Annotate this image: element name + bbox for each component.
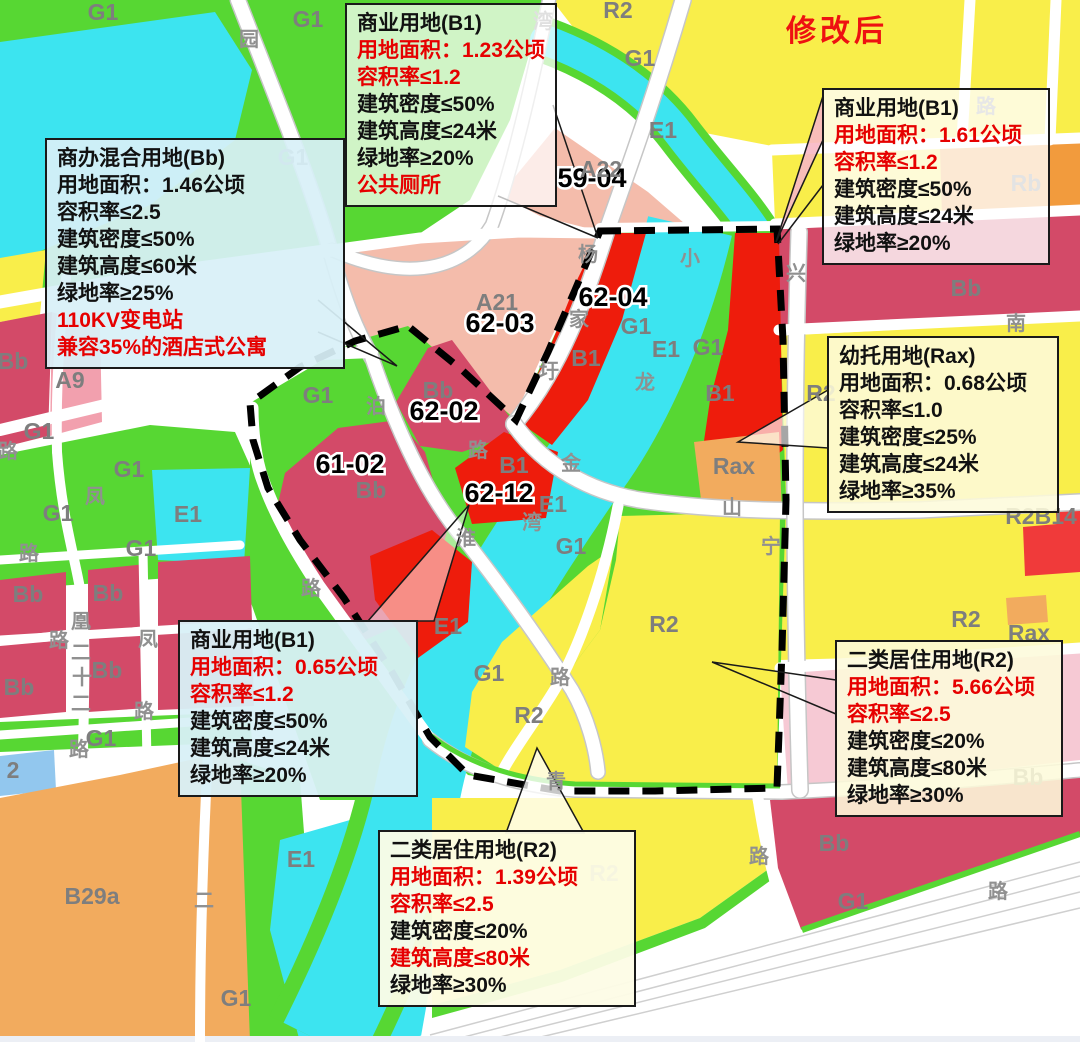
- callout-rax: 幼托用地(Rax)用地面积：0.68公顷容积率≤1.0建筑密度≤25%建筑高度≤…: [827, 336, 1059, 513]
- map-label-G1: G1: [693, 334, 724, 360]
- map-label-Bb: Bb: [423, 377, 454, 403]
- callout-b1-161-line: 建筑密度≤50%: [834, 176, 1038, 203]
- map-label-二: 二: [71, 693, 91, 715]
- callout-r2-139-line: 建筑密度≤20%: [390, 918, 624, 945]
- callout-bb-mixed: 商办混合用地(Bb)用地面积：1.46公顷容积率≤2.5建筑密度≤50%建筑高度…: [45, 138, 345, 369]
- map-label-E1: E1: [649, 117, 677, 143]
- map-label-Rax: Rax: [713, 453, 755, 479]
- callout-r2-566: 二类居住用地(R2)用地面积：5.66公顷容积率≤2.5建筑密度≤20%建筑高度…: [835, 640, 1063, 817]
- callout-r2-566-line: 容积率≤2.5: [847, 701, 1051, 728]
- callout-b1-161-line: 用地面积：1.61公顷: [834, 122, 1038, 149]
- callout-bb-mixed-line: 容积率≤2.5: [57, 199, 333, 226]
- map-label-路: 路: [749, 844, 770, 868]
- planning-map-stage: 59-0462-0462-0362-0261-0262-12G1G1R2G1E1…: [0, 0, 1080, 1042]
- map-label-二: 二: [71, 642, 91, 664]
- map-label-路: 路: [134, 699, 155, 723]
- map-label-淮: 淮: [456, 527, 476, 550]
- map-label-路: 路: [468, 438, 489, 462]
- map-label-G1: G1: [621, 313, 652, 339]
- map-label-十: 十: [72, 666, 92, 689]
- map-label-E1: E1: [434, 613, 462, 639]
- callout-b1-161-line: 绿地率≥20%: [834, 230, 1038, 257]
- plot-label-61-02: 61-02: [315, 449, 384, 479]
- map-label-二: 二: [194, 890, 214, 912]
- callout-b1-161-line: 建筑高度≤24米: [834, 203, 1038, 230]
- callout-r2-566-line: 建筑高度≤80米: [847, 755, 1051, 782]
- map-label-杨: 杨: [578, 243, 598, 266]
- map-label-G1: G1: [86, 725, 117, 751]
- map-label-路: 路: [19, 541, 40, 565]
- map-label-R2: R2: [514, 702, 543, 728]
- map-label-山: 山: [722, 496, 742, 519]
- callout-rax-line: 容积率≤1.0: [839, 397, 1047, 424]
- map-label-Bb: Bb: [0, 348, 28, 374]
- callout-b1-161: 商业用地(B1)用地面积：1.61公顷容积率≤1.2建筑密度≤50%建筑高度≤2…: [822, 88, 1050, 265]
- map-label-路: 路: [301, 576, 322, 600]
- map-label-宁: 宁: [761, 534, 781, 558]
- callout-b1-065-line: 建筑密度≤50%: [190, 708, 406, 735]
- map-label-Bb: Bb: [13, 581, 44, 607]
- callout-b1-065-line: 用地面积：0.65公顷: [190, 654, 406, 681]
- map-label-B1: B1: [571, 345, 601, 371]
- map-label-G1: G1: [474, 660, 505, 686]
- map-label-兴: 兴: [786, 262, 806, 285]
- map-label-B1: B1: [705, 380, 735, 406]
- map-label-R2: R2: [649, 611, 678, 637]
- map-label-路: 路: [69, 737, 90, 761]
- map-label-家: 家: [569, 307, 590, 331]
- map-label-G1: G1: [303, 382, 334, 408]
- callout-bb-mixed-line: 绿地率≥25%: [57, 280, 333, 307]
- modified-after-tag: 修改后: [786, 6, 888, 50]
- callout-b1-065-line: 商业用地(B1): [190, 627, 406, 654]
- callout-bb-mixed-line: 用地面积：1.46公顷: [57, 172, 333, 199]
- map-label-路: 路: [988, 879, 1009, 903]
- map-label-Bb: Bb: [951, 275, 982, 301]
- map-label-G1: G1: [24, 418, 55, 444]
- map-label-G1: G1: [126, 535, 157, 561]
- map-label-G1: G1: [625, 45, 656, 71]
- map-label-B29a: B29a: [65, 883, 120, 909]
- callout-r2-566-line: 用地面积：5.66公顷: [847, 674, 1051, 701]
- map-label-R2: R2: [603, 0, 632, 23]
- callout-r2-139: 二类居住用地(R2)用地面积：1.39公顷容积率≤2.5建筑密度≤20%建筑高度…: [378, 830, 636, 1007]
- callout-r2-566-line: 绿地率≥30%: [847, 782, 1051, 809]
- callout-b1-123-line: 建筑高度≤24米: [357, 118, 545, 145]
- callout-b1-123-line: 商业用地(B1): [357, 10, 545, 37]
- map-label-圩: 圩: [539, 360, 559, 383]
- callout-r2-566-line: 二类居住用地(R2): [847, 647, 1051, 674]
- map-label-湾: 湾: [522, 510, 542, 534]
- callout-b1-161-line: 商业用地(B1): [834, 95, 1038, 122]
- map-label-Bb: Bb: [4, 674, 35, 700]
- map-label-凤: 凤: [138, 629, 158, 651]
- map-label-E1: E1: [652, 336, 680, 362]
- plot-label-62-04: 62-04: [578, 282, 647, 312]
- map-label-2: 2: [7, 757, 20, 783]
- callout-b1-123-line: 容积率≤1.2: [357, 64, 545, 91]
- callout-b1-065-line: 容积率≤1.2: [190, 681, 406, 708]
- plot-label-62-12: 62-12: [464, 478, 533, 508]
- callout-bb-mixed-line: 兼容35%的酒店式公寓: [57, 334, 333, 361]
- map-label-G1: G1: [838, 888, 869, 914]
- map-label-A9: A9: [55, 367, 84, 393]
- callout-r2-139-line: 二类居住用地(R2): [390, 837, 624, 864]
- map-label-G1: G1: [556, 533, 587, 559]
- map-label-G1: G1: [43, 500, 74, 526]
- map-label-E1: E1: [287, 846, 315, 872]
- map-label-凤: 凤: [85, 486, 105, 508]
- callout-b1-123-line: 公共厕所: [357, 172, 545, 199]
- callout-b1-123-line: 绿地率≥20%: [357, 145, 545, 172]
- map-label-龙: 龙: [635, 370, 655, 394]
- callout-rax-line: 用地面积：0.68公顷: [839, 370, 1047, 397]
- callout-rax-line: 建筑密度≤25%: [839, 424, 1047, 451]
- callout-b1-161-line: 容积率≤1.2: [834, 149, 1038, 176]
- callout-r2-139-line: 绿地率≥30%: [390, 972, 624, 999]
- callout-b1-123-line: 建筑密度≤50%: [357, 91, 545, 118]
- callout-bb-mixed-line: 商办混合用地(Bb): [57, 145, 333, 172]
- map-label-B1: B1: [499, 452, 529, 478]
- callout-bb-mixed-line: 110KV变电站: [57, 307, 333, 334]
- map-label-Bb: Bb: [819, 830, 850, 856]
- map-label-G1: G1: [114, 456, 145, 482]
- callout-b1-123: 商业用地(B1)用地面积：1.23公顷容积率≤1.2建筑密度≤50%建筑高度≤2…: [345, 3, 557, 207]
- map-label-G1: G1: [221, 985, 252, 1011]
- map-label-青: 青: [546, 770, 566, 793]
- map-label-小: 小: [680, 247, 700, 270]
- callout-r2-139-line: 建筑高度≤80米: [390, 945, 624, 972]
- map-label-路: 路: [49, 628, 70, 652]
- callout-rax-line: 幼托用地(Rax): [839, 343, 1047, 370]
- callout-rax-line: 建筑高度≤24米: [839, 451, 1047, 478]
- callout-b1-065: 商业用地(B1)用地面积：0.65公顷容积率≤1.2建筑密度≤50%建筑高度≤2…: [178, 620, 418, 797]
- map-label-G1: G1: [293, 6, 324, 32]
- map-label-金: 金: [560, 451, 582, 475]
- map-label-泊: 泊: [366, 395, 386, 418]
- map-label-R2: R2: [951, 606, 980, 632]
- callout-rax-line: 绿地率≥35%: [839, 478, 1047, 505]
- map-label-路: 路: [550, 665, 571, 689]
- callout-b1-065-line: 绿地率≥20%: [190, 762, 406, 789]
- map-label-Bb: Bb: [356, 477, 387, 503]
- callout-r2-139-line: 容积率≤2.5: [390, 891, 624, 918]
- map-label-E1: E1: [174, 501, 202, 527]
- map-label-凰: 凰: [71, 611, 91, 633]
- callout-b1-123-line: 用地面积：1.23公顷: [357, 37, 545, 64]
- callout-r2-566-line: 建筑密度≤20%: [847, 728, 1051, 755]
- map-label-园: 园: [239, 29, 259, 51]
- callout-r2-139-line: 用地面积：1.39公顷: [390, 864, 624, 891]
- map-label-G1: G1: [88, 0, 119, 25]
- map-label-A22: A22: [580, 156, 622, 182]
- map-label-Bb: Bb: [92, 657, 123, 683]
- map-label-南: 南: [1006, 312, 1026, 335]
- callout-b1-065-line: 建筑高度≤24米: [190, 735, 406, 762]
- map-label-Bb: Bb: [93, 580, 124, 606]
- callout-bb-mixed-line: 建筑高度≤60米: [57, 253, 333, 280]
- callout-bb-mixed-line: 建筑密度≤50%: [57, 226, 333, 253]
- map-label-E1: E1: [539, 491, 567, 517]
- map-label-A21: A21: [476, 289, 518, 315]
- map-label-路: 路: [0, 439, 19, 463]
